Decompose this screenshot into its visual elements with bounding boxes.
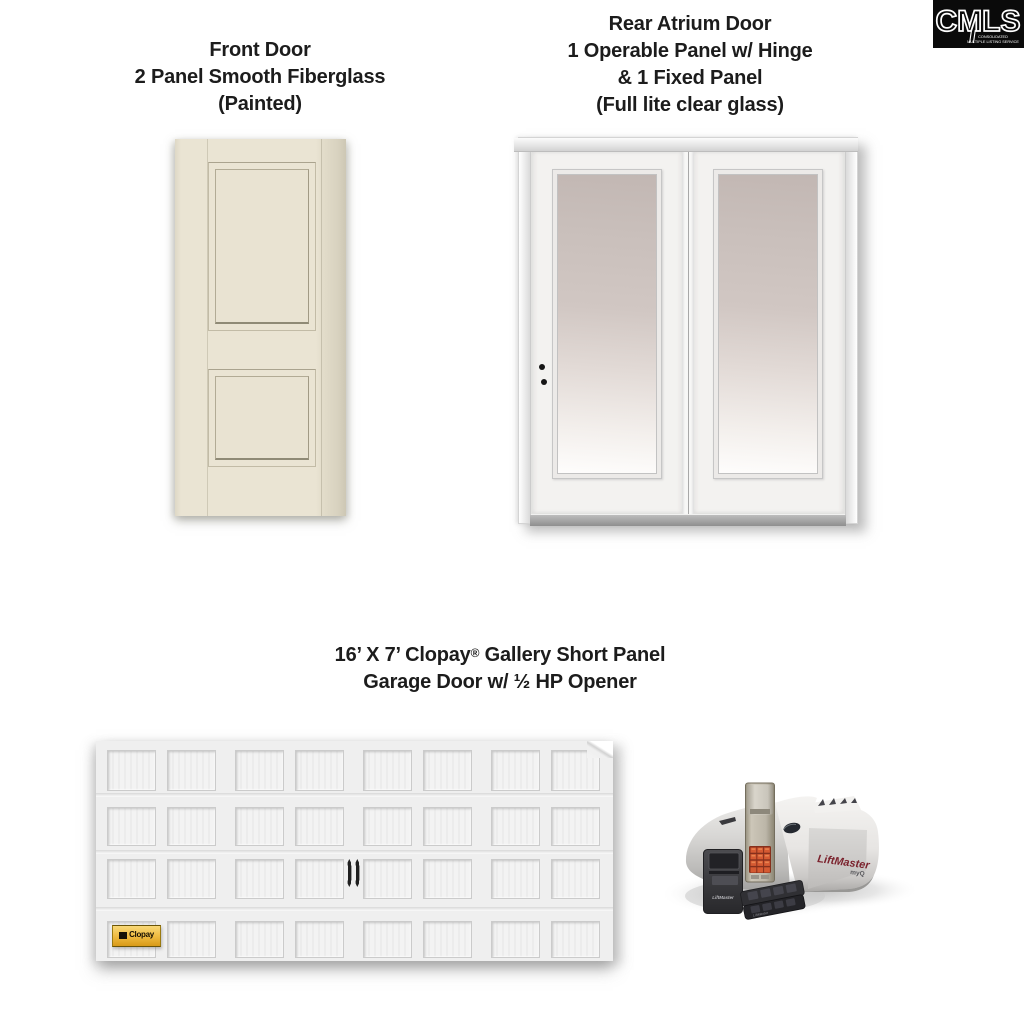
svg-text:LiftMaster: LiftMaster xyxy=(712,895,734,900)
svg-text:CMLS: CMLS xyxy=(936,5,1021,38)
svg-text:MULTIPLE LISTING SERVICE: MULTIPLE LISTING SERVICE xyxy=(967,40,1019,44)
svg-text:CONSOLIDATED: CONSOLIDATED xyxy=(978,35,1008,39)
